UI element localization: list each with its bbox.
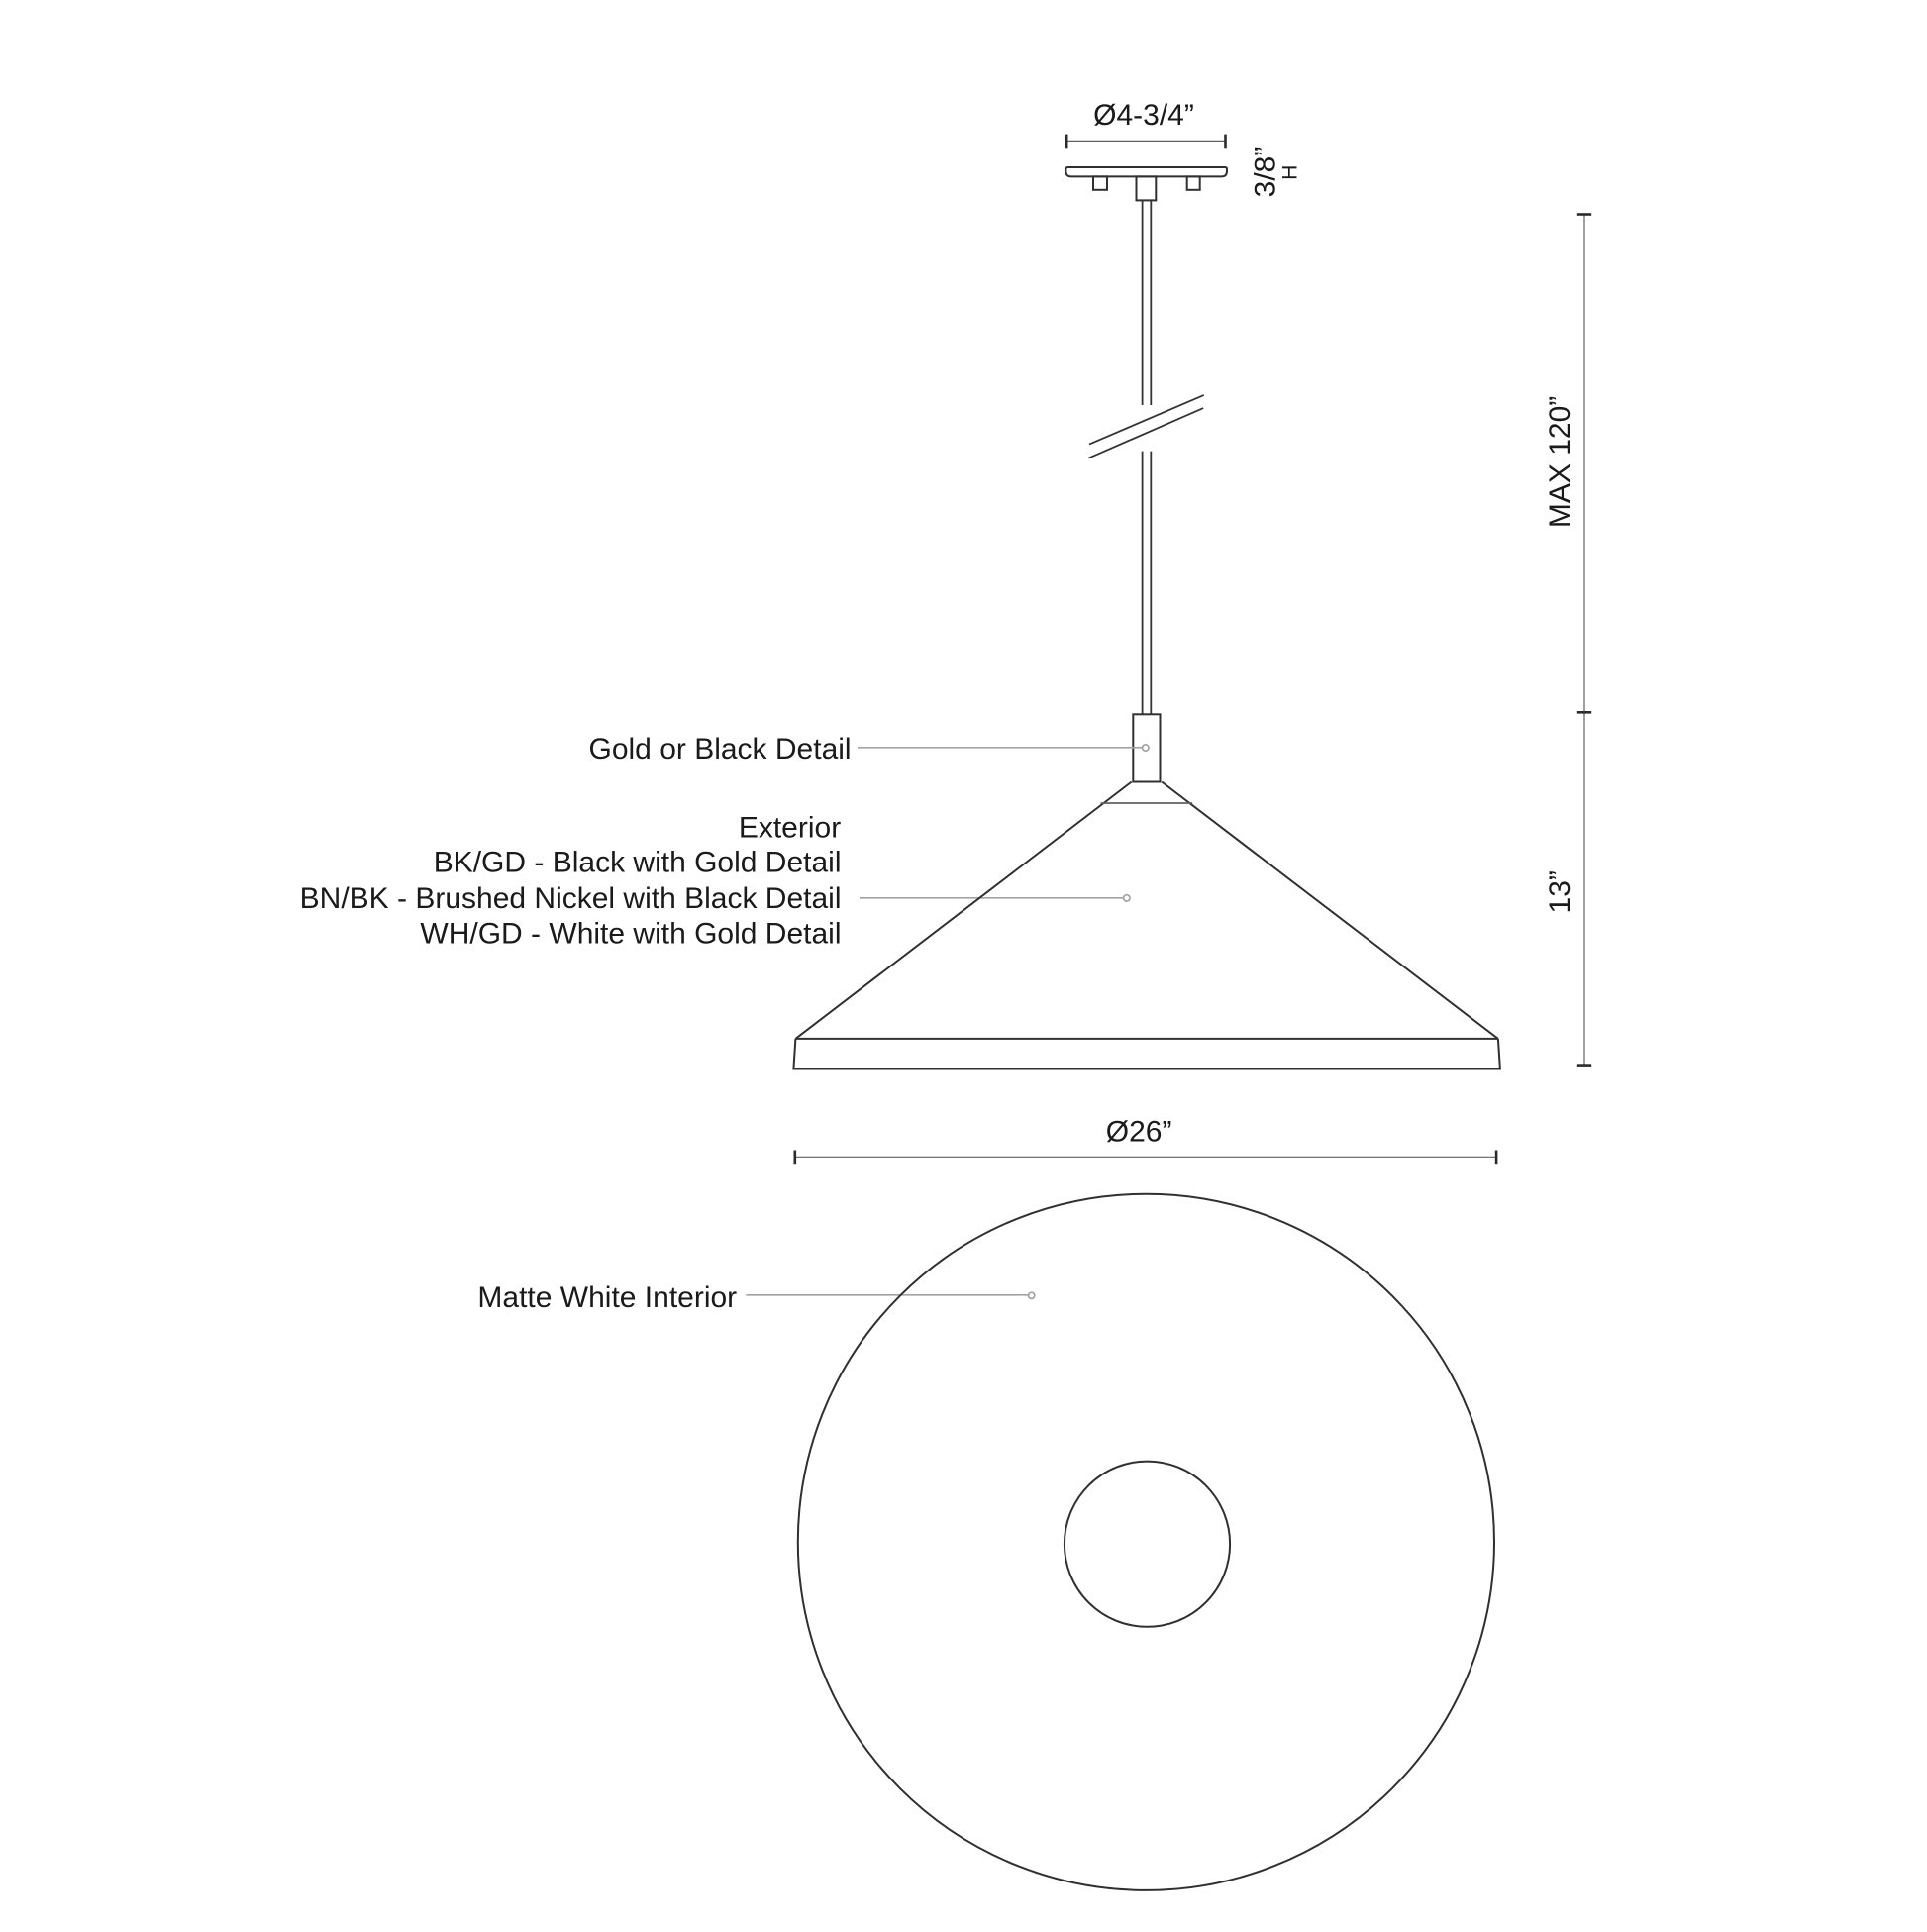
svg-text:H: H <box>1279 165 1302 180</box>
svg-text:Ø4-3/4”: Ø4-3/4” <box>1093 99 1194 132</box>
svg-text:Ø26”: Ø26” <box>1106 1116 1172 1149</box>
svg-text:13”: 13” <box>1544 870 1576 913</box>
svg-text:Exterior: Exterior <box>739 812 841 845</box>
svg-text:WH/GD - White with Gold Detail: WH/GD - White with Gold Detail <box>420 917 841 950</box>
svg-text:BK/GD - Black with Gold Detail: BK/GD - Black with Gold Detail <box>434 846 842 878</box>
svg-text:MAX 120”: MAX 120” <box>1544 396 1576 528</box>
svg-text:Matte White Interior: Matte White Interior <box>477 1281 737 1314</box>
svg-text:BN/BK - Brushed Nickel with Bl: BN/BK - Brushed Nickel with Black Detail <box>300 882 842 915</box>
svg-text:3/8”: 3/8” <box>1250 147 1282 198</box>
svg-text:Gold or Black Detail: Gold or Black Detail <box>588 733 851 765</box>
